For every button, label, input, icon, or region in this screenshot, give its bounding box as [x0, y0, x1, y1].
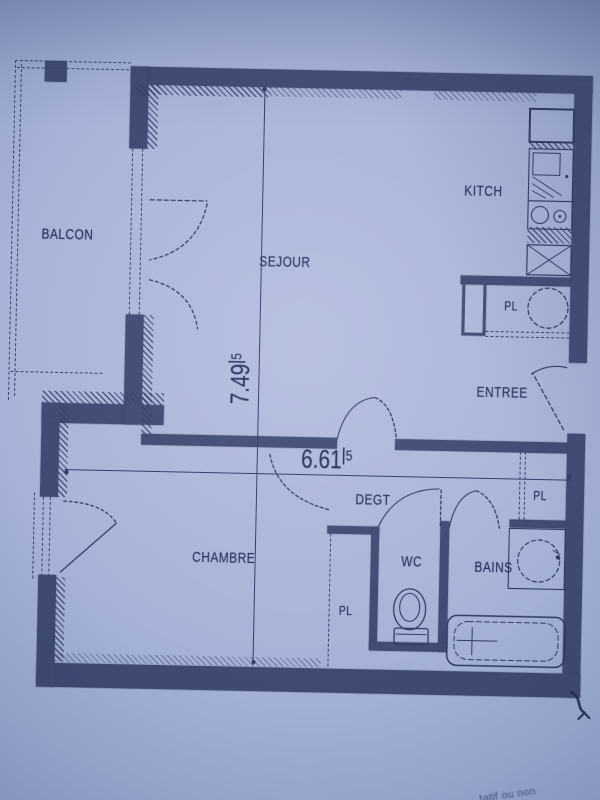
dimension-vertical-value: 7.49	[224, 364, 255, 405]
washbasin-icon	[508, 528, 565, 589]
room-label-bains: BAINS	[474, 560, 512, 577]
refrigerator-icon	[529, 109, 574, 143]
balcony-french-doors-icon	[147, 200, 207, 329]
closet-label-chambre: PL	[339, 604, 353, 618]
dimension-horizontal-value: 6.61	[301, 444, 342, 475]
kitchen-crossed-unit-icon	[527, 245, 572, 276]
chambre-window-door-icon	[60, 501, 116, 573]
room-label-entree: ENTREE	[476, 385, 528, 402]
entry-door-icon	[530, 366, 566, 430]
floor-plan-photo: BALCON SEJOUR KITCH ENTREE DEGT CHAMBRE …	[0, 0, 600, 800]
room-label-kitchen: KITCH	[464, 183, 502, 200]
room-label-degagement: DEGT	[355, 492, 390, 509]
dimension-horizontal: 6.615	[301, 444, 353, 476]
dimension-dots	[60, 83, 579, 671]
sejour-degt-door-icon	[337, 397, 397, 440]
handwritten-arrow-mark	[570, 692, 590, 719]
bathtub-icon	[446, 615, 565, 667]
dimension-vertical: 7.495	[224, 353, 256, 405]
room-label-sejour: SEJOUR	[259, 254, 311, 271]
cooktop-icon	[528, 201, 573, 230]
water-heater-icon	[528, 288, 569, 329]
room-label-balcon: BALCON	[41, 227, 93, 244]
closet-label-entree: PL	[533, 489, 547, 503]
room-label-chambre: CHAMBRE	[192, 550, 255, 567]
dimension-horizontal-sup: 5	[343, 447, 353, 464]
closet-label-kitchen: PL	[504, 299, 518, 313]
floor-plan: BALCON SEJOUR KITCH ENTREE DEGT CHAMBRE …	[0, 0, 600, 800]
toilet-icon	[393, 589, 429, 645]
kitchen-sink-icon	[528, 149, 573, 202]
bains-door-icon	[449, 490, 500, 528]
room-label-wc: WC	[401, 554, 422, 570]
dimension-vertical-sup: 5	[228, 353, 245, 363]
